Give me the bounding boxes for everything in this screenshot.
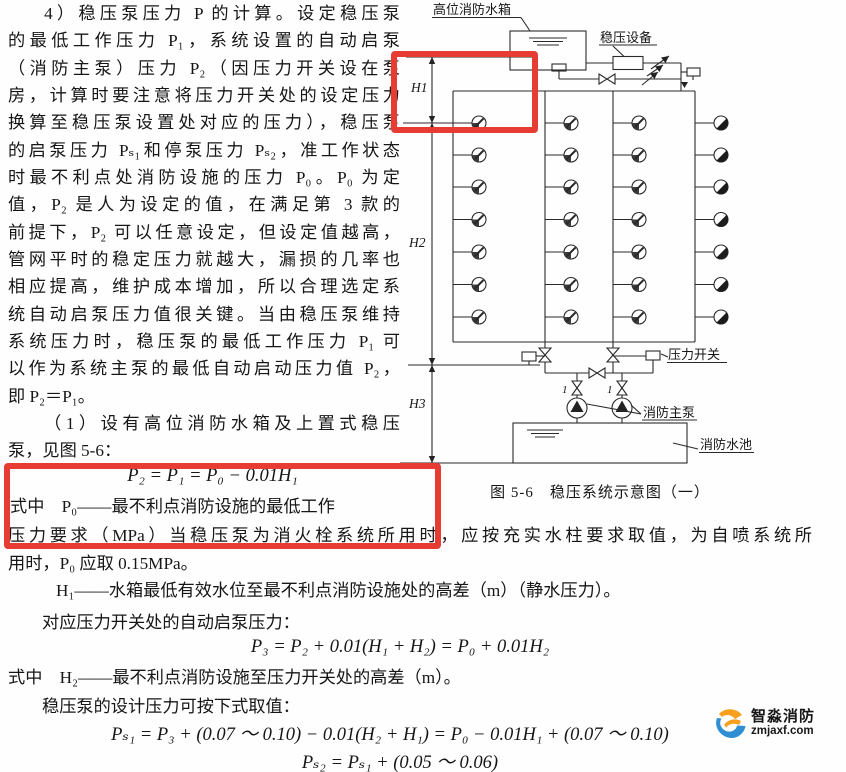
text-line: 即 P₂＝P₁。 xyxy=(8,386,95,408)
text-line: 系统压力时，稳压泵的最低工作压力 P₁ 可 xyxy=(8,331,400,353)
formula-p3: P₃ = P₂ + 0.01(H₁ + H₂) = P₀ + 0.01H₂ xyxy=(120,637,680,658)
watermark-logo: 智淼消防 zmjaxf.com xyxy=(712,705,815,741)
document-page: 4）稳压泵压力 P 的计算。设定稳压泵 的最低工作压力 P₁，系统设置的自动启泵… xyxy=(0,0,846,772)
sprinkler-heads xyxy=(453,116,728,324)
gauge-box xyxy=(687,68,700,76)
main-pump-label: 消防主泵 xyxy=(643,405,695,420)
fire-pool xyxy=(513,423,687,463)
fire-water-tank xyxy=(510,31,586,70)
text-line: 的最低工作压力 P₁，系统设置的自动启泵 xyxy=(8,30,400,52)
formula-ps2: Pₛ₂ = Pₛ₁ + (0.05 ～ 0.06) xyxy=(200,748,600,772)
text-line: 以作为系统主泵的最低自动启动压力值 P₂， xyxy=(8,358,400,380)
text-line: 时最不利点处消防设施的压力 P₀。P₀ 为定 xyxy=(8,167,400,189)
watermark-site: zmjaxf.com xyxy=(751,725,815,737)
pressure-switch-left xyxy=(522,352,536,361)
text-line: 式中 P₀——最不利点消防设施的最低工作 xyxy=(10,496,335,518)
text-line: 相应提高，维护成本增加，所以合理选定系 xyxy=(8,276,400,298)
tank-label: 高位消防水箱 xyxy=(433,2,511,17)
logo-icon xyxy=(712,705,748,741)
text-line: 式中 H₂——最不利点消防设施至压力开关处的高差（m）。 xyxy=(8,667,461,689)
text-line: 泵，见图 5-6： xyxy=(8,440,121,462)
text-line: 房，计算时要注意将压力开关处的设定压力 xyxy=(8,85,400,107)
text-line: （消防主泵）压力 P₂（因压力开关设在泵 xyxy=(8,58,400,80)
text-line: 管网平时的稳定压力就越大，漏损的几率也 xyxy=(8,249,400,271)
text-line: 前提下，P₂ 可以任意设定，但设定值越高， xyxy=(8,222,400,244)
text-line: 对应压力开关处的自动启泵压力： xyxy=(42,612,300,634)
stabilizer-label: 稳压设备 xyxy=(600,30,652,45)
text-line: 换算至稳压泵设置处对应的压力），稳压泵 xyxy=(8,112,400,134)
dim-h3-label: H3 xyxy=(408,396,426,411)
text-line: H₁——水箱最低有效水位至最不利点消防设施处的高差（m）（静水压力）。 xyxy=(56,580,621,602)
text-line: 统自动启泵压力值很关键。当由稳压泵维持 xyxy=(8,304,400,326)
watermark-brand: 智淼消防 xyxy=(751,709,815,725)
text-line: 值，P₂ 是人为设定的值，在满足第 3 款的 xyxy=(8,194,400,216)
stabilizer-unit xyxy=(613,57,643,70)
text-line: 稳压泵的设计压力可按下式取值： xyxy=(42,696,300,718)
text-line: 用时，P₀ 应取 0.15MPa。 xyxy=(8,553,198,575)
pressure-switch-right xyxy=(646,351,660,360)
formula-p2: P₂ = P₁ = P₀ − 0.01H₁ xyxy=(60,466,365,487)
dim-h1-label: H1 xyxy=(410,80,428,95)
dim-h2-label: H2 xyxy=(408,235,426,250)
pump-number-left: 1 xyxy=(562,384,568,396)
pump-number-right: 1 xyxy=(607,384,613,396)
pressure-switch-label: 压力开关 xyxy=(668,347,720,362)
pool-label: 消防水池 xyxy=(700,437,752,452)
text-line: （1）设有高位消防水箱及上置式稳压 xyxy=(8,413,400,435)
system-diagram: 高位消防水箱 稳压设备 压力开关 消防主泵 消防水池 H1 H2 H3 1 1 xyxy=(400,0,846,512)
text-line: 压力要求（MPa）当稳压泵为消火栓系统所用时，应按充实水柱要求取值，为自喷系统所 xyxy=(8,525,812,547)
text-line: 4）稳压泵压力 P 的计算。设定稳压泵 xyxy=(8,3,400,25)
formula-ps1: Pₛ₁ = P₃ + (0.07 ～ 0.10) − 0.01(H₂ + H₁)… xyxy=(45,720,735,746)
text-line: 的启泵压力 Pₛ₁和停泵压力 Pₛ₂，准工作状态 xyxy=(8,140,400,162)
